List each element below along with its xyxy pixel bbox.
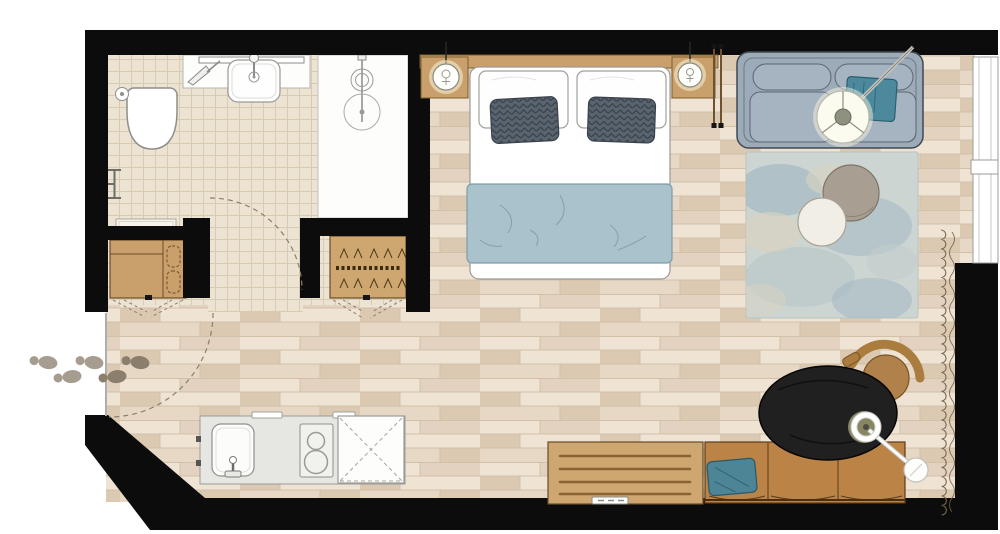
counter-handle (252, 412, 282, 418)
kitchen-faucet-handle (225, 471, 241, 477)
window-mullion (971, 160, 998, 174)
toilet-bowl (127, 88, 177, 149)
wall-wardrobe-left-stub (300, 218, 320, 298)
minibar-cabinet (110, 240, 186, 300)
wall-bath-door-stub (183, 218, 210, 298)
wardrobe (330, 236, 406, 300)
accent-pillow-left (490, 96, 559, 143)
round-table-white (798, 198, 846, 246)
duvet (467, 184, 672, 263)
bathroom-doorway-tile (208, 298, 303, 312)
wardrobe-handle (363, 295, 370, 300)
minibar-body (110, 240, 186, 298)
sofa-group (737, 47, 923, 148)
drain-dot (253, 76, 256, 79)
shower-mount (358, 55, 366, 60)
shower-spray-dot (360, 110, 365, 115)
footprint (29, 354, 59, 371)
arc-lamp-hub (835, 109, 851, 125)
wall-right (955, 263, 998, 530)
wall-under-shower (310, 218, 430, 236)
rack-cap (712, 123, 717, 128)
pendant-ring-dot (863, 424, 869, 430)
wall-left (85, 30, 108, 312)
hinge (196, 460, 201, 466)
rack-cap (719, 123, 724, 128)
toilet-paper-dot (120, 92, 124, 96)
sideboard (548, 442, 703, 504)
lounge-rug-area (734, 152, 918, 322)
accent-pillow-right (587, 97, 655, 143)
pendant-lamp-left (433, 64, 459, 90)
bench-pillow (707, 458, 758, 496)
wall-above-minibar (108, 226, 187, 240)
rack-cap (719, 44, 724, 49)
footprint (75, 354, 105, 371)
rack-cap (712, 44, 717, 49)
shower (318, 55, 408, 218)
floor-plan (0, 0, 1000, 534)
shower-tray (318, 55, 408, 218)
kitchenette (196, 412, 405, 484)
window-band (971, 57, 998, 263)
hinge (196, 436, 201, 442)
kitchen-drain (230, 457, 237, 464)
wall-wardrobe-right (406, 236, 430, 312)
minibar-handle (145, 295, 152, 300)
sofa-back-cushion (753, 64, 831, 90)
wardrobe-body (330, 236, 406, 298)
footprint (53, 369, 82, 385)
